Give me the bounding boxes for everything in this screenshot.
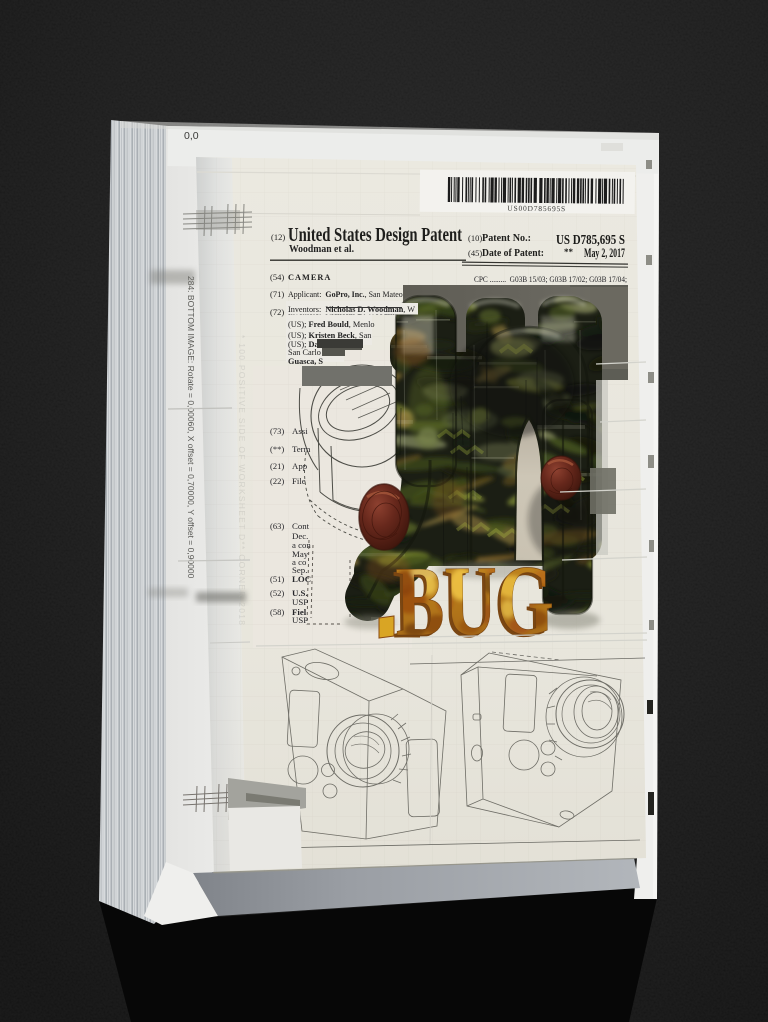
svg-text:(**): (**) bbox=[270, 444, 284, 454]
svg-text:(54): (54) bbox=[270, 272, 284, 282]
svg-text:(12): (12) bbox=[271, 232, 285, 242]
svg-text:USP: USP bbox=[292, 597, 308, 607]
svg-text:(10): (10) bbox=[468, 233, 482, 243]
svg-text:(58): (58) bbox=[270, 607, 284, 617]
svg-text:Woodman et al.: Woodman et al. bbox=[289, 244, 354, 255]
svg-text:(US); Kristen Beck, San: (US); Kristen Beck, San bbox=[288, 331, 372, 340]
svg-text:(45): (45) bbox=[468, 248, 482, 258]
svg-text:Assi: Assi bbox=[292, 426, 308, 436]
svg-text:San Carlo: San Carlo bbox=[288, 348, 321, 357]
svg-text:United States Design Patent: United States Design Patent bbox=[288, 224, 462, 246]
svg-text:Date of Patent:: Date of Patent: bbox=[482, 248, 544, 259]
svg-text:USP: USP bbox=[292, 615, 308, 625]
svg-text:Term: Term bbox=[292, 444, 311, 454]
svg-text:(51): (51) bbox=[270, 574, 284, 584]
svg-text:(71): (71) bbox=[270, 289, 284, 299]
svg-text:US00D785695S: US00D785695S bbox=[507, 204, 566, 214]
svg-text:284: BOTTOM IMAGE: Rotate = 0,: 284: BOTTOM IMAGE: Rotate = 0,00060, X o… bbox=[186, 276, 196, 579]
svg-text:(72): (72) bbox=[270, 307, 284, 317]
svg-text:(21): (21) bbox=[270, 461, 284, 471]
svg-text:(22): (22) bbox=[270, 476, 284, 486]
svg-text:US D785,695 S: US D785,695 S bbox=[556, 232, 625, 247]
svg-text:May 2, 2017: May 2, 2017 bbox=[584, 246, 625, 260]
svg-text:**: ** bbox=[564, 247, 574, 257]
svg-text:Cont: Cont bbox=[292, 521, 310, 531]
svg-text:(US); Fred Bould, Menlo: (US); Fred Bould, Menlo bbox=[288, 320, 375, 329]
svg-text:LOC: LOC bbox=[292, 574, 311, 584]
svg-text:Patent No.:: Patent No.: bbox=[482, 233, 531, 244]
svg-text:Inventors: Nicholas D. Woodma: Inventors: Nicholas D. Woodman, W bbox=[288, 305, 415, 314]
svg-text:CPC ......... G03B 15/03; G03: CPC ......... G03B 15/03; G03B 17/02; G0… bbox=[474, 275, 627, 284]
svg-text:(63): (63) bbox=[270, 521, 284, 531]
svg-text:Guasca, S: Guasca, S bbox=[288, 357, 323, 366]
svg-text:0,0: 0,0 bbox=[184, 130, 199, 142]
svg-text:CAMERA: CAMERA bbox=[288, 273, 331, 282]
svg-text:App: App bbox=[292, 461, 308, 471]
svg-text:File: File bbox=[292, 476, 306, 486]
svg-text:(52): (52) bbox=[270, 588, 284, 598]
svg-text:(73): (73) bbox=[270, 426, 284, 436]
svg-text:Applicant: GoPro, Inc., San M: Applicant: GoPro, Inc., San Mateo, C bbox=[288, 290, 412, 299]
